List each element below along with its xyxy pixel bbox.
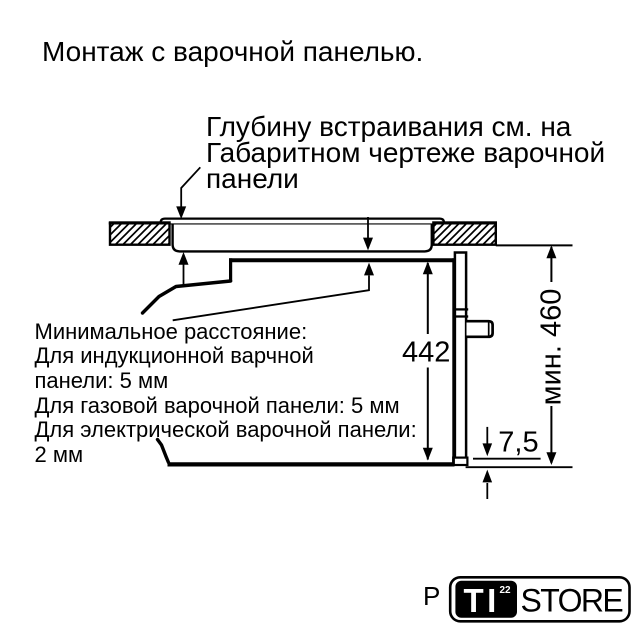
svg-text:STORE: STORE — [521, 583, 623, 619]
svg-text:22: 22 — [500, 585, 512, 596]
svg-text:TI: TI — [464, 582, 500, 619]
svg-text:7,5: 7,5 — [498, 426, 538, 458]
svg-text:442: 442 — [402, 337, 450, 369]
svg-text:P: P — [423, 581, 440, 611]
svg-text:мин. 460: мин. 460 — [536, 289, 568, 406]
